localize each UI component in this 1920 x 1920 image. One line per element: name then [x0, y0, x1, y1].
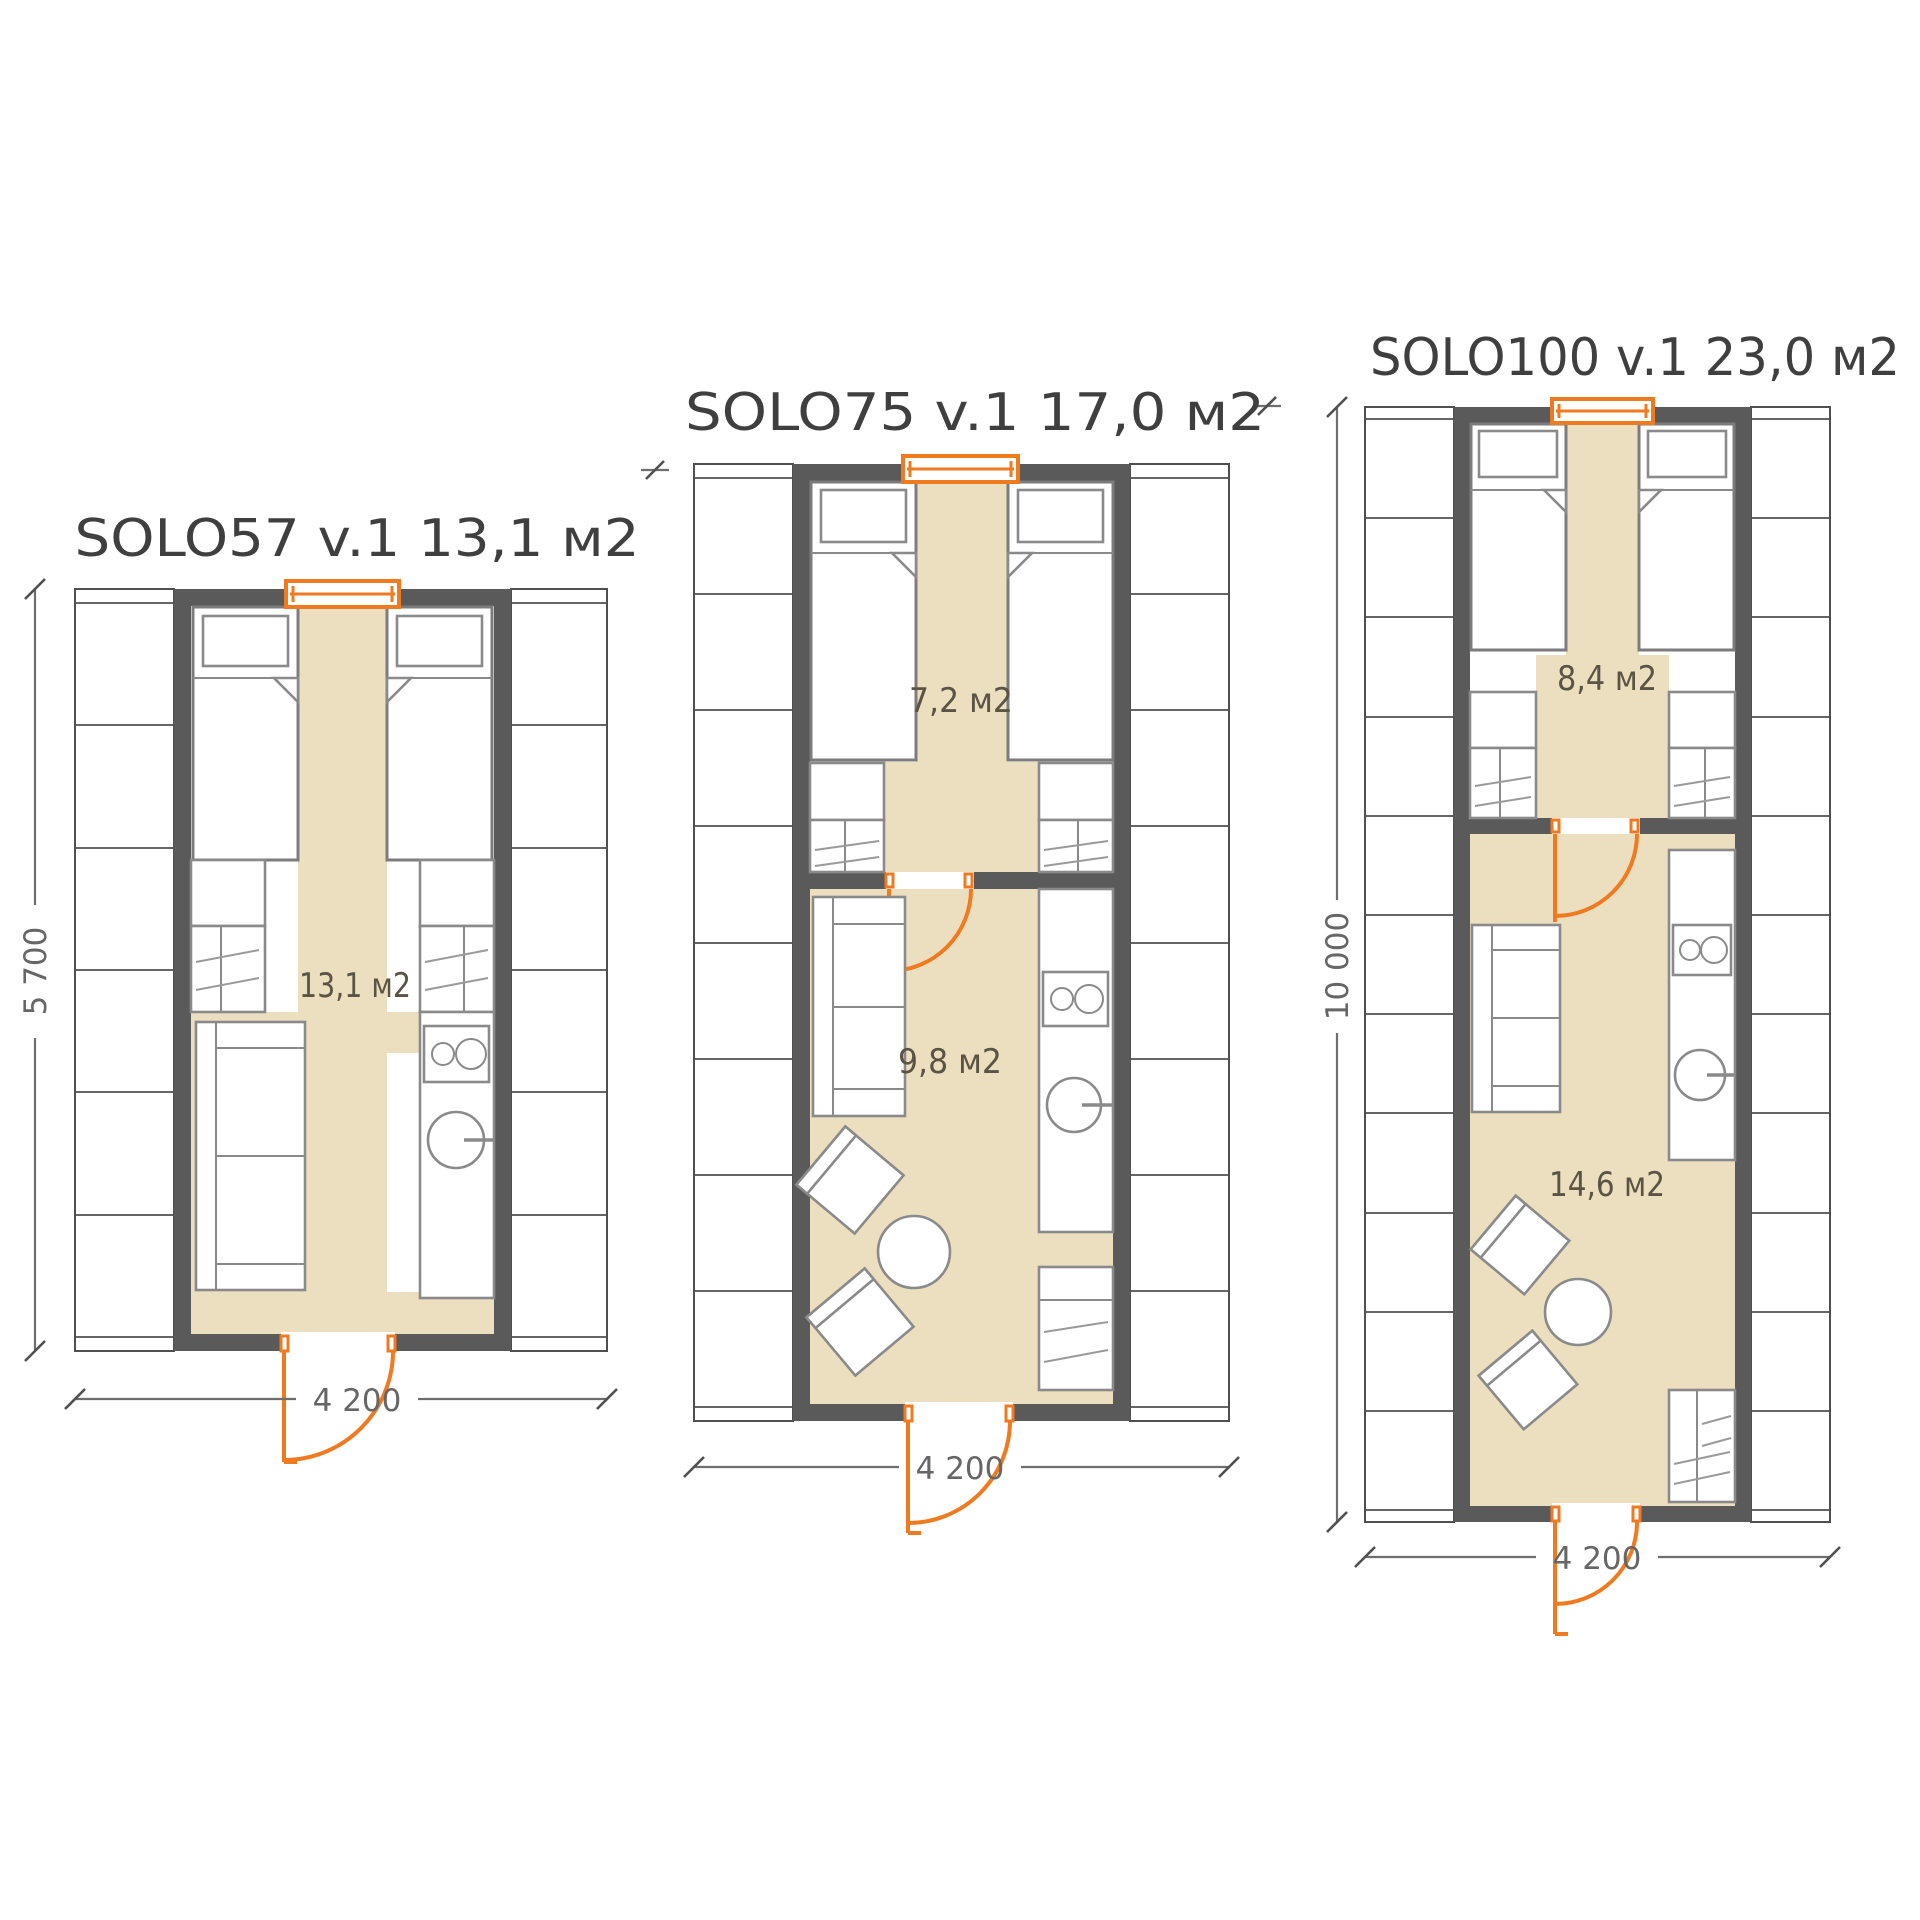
window-icon: [1552, 399, 1653, 423]
terrace-left: [75, 589, 174, 1351]
dresser-bottom-right: [1039, 1267, 1113, 1390]
kitchen-counter: [420, 1012, 494, 1298]
terrace-right: [511, 589, 607, 1351]
stove-icon: [1673, 925, 1731, 975]
round-table: [878, 1216, 950, 1288]
dresser-right: [420, 926, 494, 1012]
window-icon: [903, 456, 1018, 482]
dresser-left: [1470, 748, 1536, 818]
wardrobe-bottom-right: [1669, 1390, 1735, 1502]
dimension-width-solo100: 4 200: [1355, 1541, 1840, 1577]
terrace-right: [1130, 464, 1229, 1421]
kitchen-counter: [1669, 850, 1735, 1160]
terrace-left: [1365, 407, 1454, 1522]
sofa: [1472, 925, 1560, 1112]
stove-icon: [1043, 972, 1108, 1026]
dresser-left: [810, 820, 884, 872]
floor-plan-sheet: SOLO57 v.1 13,1 м2 5 700: [0, 0, 1920, 1920]
sofa: [813, 897, 905, 1116]
plan-solo100: SOLO100 v.1 23,0 м2 10 000: [1320, 328, 1900, 1634]
wardrobe-left: [810, 763, 884, 820]
plan-solo75: SOLO75 v.1 17,0 м2: [684, 383, 1265, 1533]
dimension-width-solo57: 4 200: [65, 1383, 617, 1419]
area-label-living: 9,8 м2: [898, 1042, 1002, 1082]
plan-title-solo57: SOLO57 v.1 13,1 м2: [75, 509, 640, 569]
plan-solo57: SOLO57 v.1 13,1 м2 5 700: [18, 509, 640, 1462]
sofa: [196, 1022, 305, 1290]
stove-icon: [424, 1026, 489, 1082]
plan-title-solo100: SOLO100 v.1 23,0 м2: [1370, 328, 1900, 388]
wardrobe-right: [1039, 763, 1113, 820]
bed-left: [811, 482, 916, 760]
height-dimension-label: 5 700: [18, 927, 54, 1016]
terrace-left: [694, 464, 793, 1421]
dimension-height-solo100: 10 000: [1320, 397, 1356, 1532]
area-label-bedroom: 8,4 м2: [1557, 659, 1657, 699]
dresser-right: [1669, 748, 1735, 818]
bed-right: [1008, 482, 1113, 760]
bed-right: [387, 607, 492, 860]
window-icon: [286, 581, 399, 607]
terrace-right: [1751, 407, 1830, 1522]
bed-left: [193, 607, 298, 860]
dresser-left: [191, 926, 265, 1012]
kitchen-counter: [1039, 889, 1113, 1232]
dimension-width-solo75: 4 200: [684, 1451, 1239, 1487]
width-dimension-label: 4 200: [916, 1451, 1005, 1487]
height-dimension-label: 10 000: [1320, 912, 1356, 1020]
area-label-bedroom: 7,2 м2: [909, 681, 1013, 721]
width-dimension-label: 4 200: [313, 1383, 402, 1419]
plan-title-solo75: SOLO75 v.1 17,0 м2: [685, 383, 1265, 443]
floor-plan-canvas: SOLO57 v.1 13,1 м2 5 700: [0, 0, 1920, 1920]
wardrobe-right: [420, 860, 494, 926]
area-label-living: 14,6 м2: [1549, 1165, 1665, 1205]
width-dimension-label: 4 200: [1553, 1541, 1642, 1577]
wardrobe-left: [191, 860, 265, 926]
dresser-right: [1039, 820, 1113, 872]
wardrobe-right: [1669, 692, 1735, 748]
dimension-height-solo57: 5 700: [18, 579, 54, 1361]
bed-left: [1471, 424, 1566, 650]
area-label-studio: 13,1 м2: [299, 966, 411, 1006]
round-table: [1545, 1279, 1611, 1345]
reference-tick-1: [641, 461, 669, 479]
wardrobe-left: [1470, 692, 1536, 748]
bed-right: [1639, 424, 1734, 650]
